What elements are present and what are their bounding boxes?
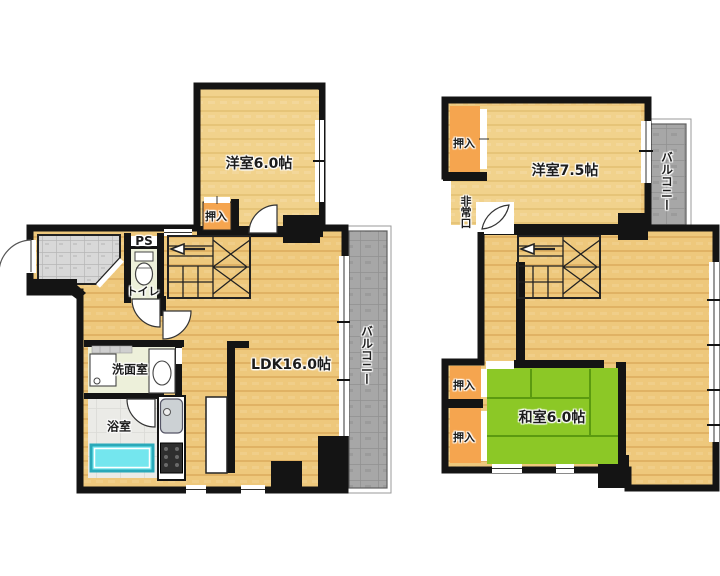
right-plan: [443, 100, 720, 488]
floorplan-svg: [0, 0, 720, 576]
label-balcony-2f: バルコニー: [659, 151, 676, 211]
label-emergency-exit: 非常口: [457, 196, 473, 229]
label-closet-2f-upper: 押入: [453, 377, 475, 393]
label-closet-2f-top: 押入: [453, 135, 475, 151]
label-pipe-space: PS: [135, 234, 152, 248]
bathroom: [88, 399, 158, 478]
kitchen-sink-icon: [161, 399, 183, 433]
toilet-tank: [135, 252, 153, 261]
stove-icon: [161, 443, 183, 473]
left-plan: [0, 86, 391, 494]
label-closet-2f-lower: 押入: [453, 429, 475, 445]
label-western-room-75: 洋室7.5帖: [532, 160, 599, 180]
label-western-room-6: 洋室6.0帖: [226, 153, 293, 173]
kitchen-island: [206, 397, 227, 473]
label-japanese-room: 和室6.0帖: [519, 407, 586, 427]
toilet-bowl-icon: [136, 263, 153, 285]
label-toilet: トイレ: [127, 283, 160, 299]
label-bathroom: 浴室: [107, 418, 131, 435]
label-washroom: 洗面室: [112, 361, 148, 378]
label-closet-1f: 押入: [205, 208, 227, 224]
label-balcony-1f: バルコニー: [359, 325, 376, 385]
label-ldk: LDK16.0帖: [251, 354, 331, 374]
floor-plan-image: 洋室6.0帖 押入 PS トイレ 洗面室 浴室 LDK16.0帖 バルコニー 押…: [0, 0, 720, 576]
